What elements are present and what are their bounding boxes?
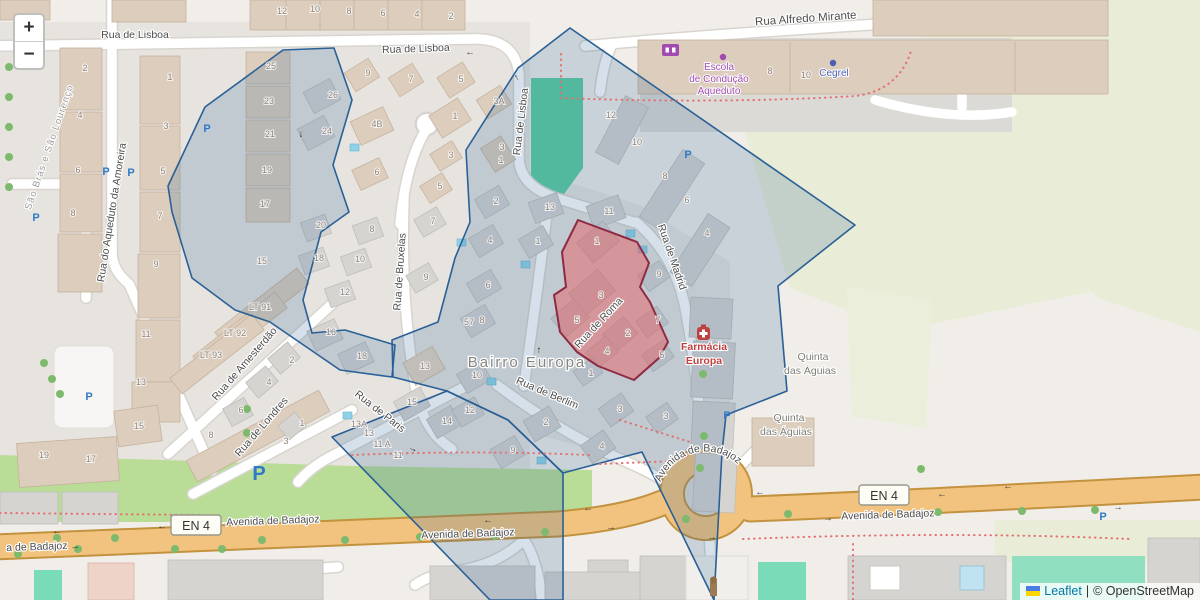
house-number: 4 — [704, 228, 709, 238]
tree-icon — [1091, 506, 1099, 514]
house-number: 8 — [346, 6, 351, 16]
house-number: 14 — [442, 416, 452, 426]
house-number: 9 — [365, 68, 370, 78]
oneway-arrow: → — [823, 513, 833, 524]
house-number: 5 — [458, 74, 463, 84]
attribution-divider: | — [1086, 584, 1089, 598]
tree-icon — [541, 528, 549, 536]
tree-icon — [5, 153, 13, 161]
leaflet-map-canvas[interactable]: PPPPPPPPP ←↑↓↑→←→←←←→←→←→→←1210864224681… — [0, 0, 1200, 600]
house-number: 23 — [264, 96, 274, 106]
zoom-in-button[interactable]: + — [15, 15, 43, 42]
house-number: 25 — [266, 61, 276, 71]
house-number: 16 — [326, 327, 336, 337]
tree-icon — [5, 183, 13, 191]
house-number: 3 — [283, 436, 288, 446]
house-number: 15 — [134, 421, 144, 431]
house-number: 6 — [684, 195, 689, 205]
tree-icon — [682, 515, 690, 523]
house-number: 18 — [357, 351, 367, 361]
house-number: 4 — [77, 110, 82, 120]
svg-text:EN 4: EN 4 — [182, 519, 210, 533]
oneway-arrow: ← — [755, 487, 765, 498]
house-number: 2 — [543, 417, 548, 427]
house-number: 11 — [141, 329, 150, 339]
oneway-arrow: ← — [52, 526, 62, 537]
house-number: 1 — [588, 368, 593, 378]
house-number: 6 — [380, 8, 385, 18]
house-number: 8 — [208, 430, 213, 440]
house-number: 2 — [448, 11, 453, 21]
oneway-arrow: ↓ — [299, 129, 304, 140]
tree-icon — [784, 510, 792, 518]
area-label: Quinta — [798, 351, 829, 363]
tree-icon — [56, 390, 64, 398]
house-number: 3 — [163, 121, 168, 131]
house-number: 26 — [328, 90, 338, 100]
house-number: 4B — [371, 119, 382, 129]
house-number: 2 — [493, 196, 498, 206]
house-number: 15 — [257, 256, 267, 266]
house-number: 8 — [70, 208, 75, 218]
oneway-arrow: ← — [465, 47, 475, 58]
house-number: 18 — [314, 253, 324, 263]
house-number: LT 93 — [200, 350, 222, 360]
poi-label: Escola — [704, 62, 734, 73]
house-number: 4 — [599, 441, 604, 451]
house-number: 5 — [437, 181, 442, 191]
tree-icon — [48, 375, 56, 383]
house-number: 8 — [767, 66, 772, 76]
house-number: 21 — [265, 129, 275, 139]
house-number: 4 — [414, 9, 419, 19]
house-number: 1 — [535, 236, 540, 246]
house-number: 3 — [617, 404, 622, 414]
house-number: 1 — [299, 418, 304, 428]
pool — [350, 144, 359, 151]
tree-icon — [40, 359, 48, 367]
house-number: 19 — [39, 450, 49, 460]
house-number: 10 — [472, 370, 482, 380]
house-number: 7 — [408, 74, 413, 84]
tree-icon — [700, 432, 708, 440]
house-number: 8 — [369, 224, 374, 234]
poi-label: de Condução — [689, 74, 749, 85]
school-icon — [662, 44, 679, 56]
house-number: 13 — [136, 377, 146, 387]
poi-dot — [830, 60, 836, 66]
street-label: Rua de Lisboa — [101, 29, 169, 41]
tree-icon — [218, 545, 226, 553]
house-number: 57 — [464, 317, 474, 327]
house-number: 20 — [316, 220, 326, 230]
house-number: 17 — [260, 199, 270, 209]
zoom-control: + − — [13, 13, 45, 70]
oneway-arrow: → — [1113, 502, 1123, 513]
area-label: das Águias — [784, 364, 836, 377]
street-label: a de Badajoz — [6, 540, 68, 554]
monument-icon — [710, 577, 717, 597]
ukraine-flag-icon — [1026, 586, 1040, 596]
house-number: 13 — [364, 428, 374, 438]
house-number: 24 — [322, 126, 332, 136]
pitch — [758, 562, 806, 600]
tree-icon — [258, 536, 266, 544]
house-number: 10 — [801, 70, 811, 80]
parking-icon: P — [203, 123, 210, 135]
parking-icon: P — [32, 212, 39, 224]
house-number: 8 — [662, 171, 667, 181]
house-number: 10 — [310, 4, 320, 14]
svg-text:EN 4: EN 4 — [870, 489, 898, 503]
house-number: 1 — [498, 155, 503, 165]
oneway-arrow: ← — [157, 521, 167, 532]
house-number: 3 — [499, 142, 504, 152]
tree-icon — [1018, 507, 1026, 515]
parking-icon: P — [723, 410, 730, 422]
plaza — [54, 346, 114, 428]
house-number: 8 — [479, 315, 484, 325]
parking-icon: P — [252, 463, 265, 485]
house-number: 5 — [659, 350, 664, 360]
house-number: 5 — [574, 315, 579, 325]
poi-label: Cegrel — [819, 68, 848, 79]
house-number: LT 92 — [224, 328, 246, 338]
house-number: 11 — [393, 450, 402, 460]
house-number: 11 A — [373, 439, 390, 449]
tree-icon — [917, 465, 925, 473]
house-number: 9 — [510, 445, 515, 455]
house-number: 2 — [82, 63, 87, 73]
house-number: 4 — [604, 346, 609, 356]
tree-icon — [699, 370, 707, 378]
house-number: 11 — [604, 206, 613, 216]
street-label: Rua de Lisboa — [382, 42, 450, 56]
parking-icon: P — [684, 149, 691, 161]
map-svg: PPPPPPPPP ←↑↓↑→←→←←←→←→←→→←1210864224681… — [0, 0, 1200, 600]
parking-icon: P — [102, 166, 109, 178]
house-number: 6 — [75, 165, 80, 175]
tree-icon — [5, 123, 13, 131]
oneway-arrow: → — [606, 522, 616, 533]
house-number: 4 — [266, 377, 271, 387]
attribution-bar: Leaflet | © OpenStreetMap — [1020, 583, 1200, 600]
house-number: 7 — [430, 216, 435, 226]
house-number: 13 — [545, 202, 555, 212]
tree-icon — [341, 536, 349, 544]
pitch — [34, 570, 62, 600]
oneway-arrow: → — [707, 532, 717, 543]
house-number: 1 — [594, 236, 599, 246]
leaflet-link[interactable]: Leaflet — [1044, 584, 1082, 598]
tree-icon — [171, 545, 179, 553]
area-label: Quinta — [774, 412, 805, 424]
house-number: 12 — [277, 6, 287, 16]
oneway-arrow: ← — [1003, 481, 1013, 492]
house-number: 10 — [632, 137, 642, 147]
pool — [343, 412, 352, 419]
parking-icon: P — [1099, 511, 1106, 523]
tree-icon — [934, 508, 942, 516]
house-number: 7 — [157, 211, 162, 221]
area-label: das Águias — [760, 425, 812, 438]
house-number: 12 — [340, 287, 350, 297]
osm-attribution[interactable]: © OpenStreetMap — [1093, 584, 1194, 598]
house-number: 1 — [167, 72, 172, 82]
oneway-arrow: ← — [483, 515, 493, 526]
house-number: LT 91 — [249, 302, 271, 312]
house-number: 2 — [625, 328, 630, 338]
house-number: 6 — [485, 280, 490, 290]
house-number: 12 — [465, 405, 475, 415]
house-number: 4 — [487, 235, 492, 245]
tree-icon — [5, 93, 13, 101]
oneway-arrow: ← — [583, 503, 593, 514]
parking-icon: P — [85, 391, 92, 403]
house-number: 3 — [448, 150, 453, 160]
house-number: 15 — [407, 397, 417, 407]
tree-icon — [696, 464, 704, 472]
road-ref-badge: EN 4 — [859, 485, 909, 505]
zoom-out-button[interactable]: − — [15, 42, 43, 68]
poi-label: Aqueduto — [698, 86, 741, 97]
oneway-arrow: → — [70, 541, 80, 552]
house-number: 7 — [655, 315, 660, 325]
oneway-arrow: ← — [937, 489, 947, 500]
house-number: 3 — [598, 290, 603, 300]
house-number: 19 — [262, 165, 272, 175]
tree-icon — [243, 405, 251, 413]
tree-icon — [111, 534, 119, 542]
house-number: 9 — [656, 269, 661, 279]
house-number: 12 — [606, 110, 616, 120]
house-number: 1 — [452, 111, 457, 121]
house-number: 10 — [355, 254, 365, 264]
area-label: Bairro Europa — [468, 354, 587, 371]
house-number: 3 — [663, 411, 668, 421]
house-number: 5 — [160, 166, 165, 176]
house-number: 6 — [374, 167, 379, 177]
poi-label: Farmácia — [681, 341, 727, 353]
poi-dot — [720, 54, 726, 60]
parking-icon: P — [127, 167, 134, 179]
poi-label: Europa — [686, 355, 722, 367]
house-number: 2 — [289, 355, 294, 365]
tree-icon — [5, 63, 13, 71]
house-number: 9 — [153, 259, 158, 269]
house-number: 9 — [423, 272, 428, 282]
house-number: 3A — [493, 96, 504, 106]
house-number: 6 — [238, 405, 243, 415]
house-number: 17 — [86, 454, 96, 464]
road-ref-badge: EN 4 — [171, 515, 221, 535]
house-number: 13 — [420, 361, 430, 371]
scrub-patch — [846, 286, 932, 428]
